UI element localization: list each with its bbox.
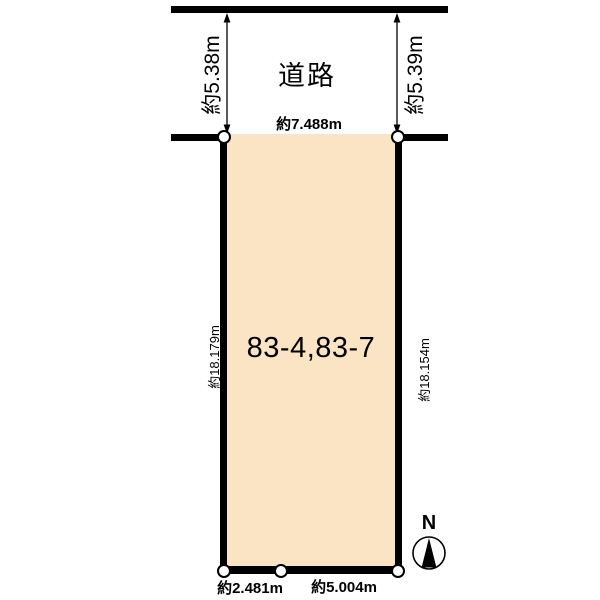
left-dimension-arrow (224, 13, 231, 134)
boundary-point-bottom-left (217, 564, 231, 578)
road-width-left-dimension: 約5.38m (196, 15, 218, 135)
parcel-bottom-right-edge-dimension: 約5.004m (294, 576, 394, 597)
road-label: 道路 (247, 54, 367, 93)
parcel-bottom-left-edge-dimension: 約2.481m (200, 577, 300, 598)
boundary-point-top-right (391, 130, 405, 144)
boundary-point-top-left (217, 130, 231, 144)
north-label: N (414, 512, 444, 535)
parcel-left-edge-dimension: 約18.179m (204, 297, 218, 417)
boundary-point-bottom-right (391, 564, 405, 578)
parcel-top-edge-dimension: 約7.488m (249, 113, 369, 134)
parcel-right-edge-dimension: 約18.154m (414, 310, 428, 430)
road-upper-edge-line (171, 6, 448, 13)
boundary-point-bottom-middle (274, 564, 288, 578)
north-compass-icon (413, 537, 445, 569)
land-plot-diagram: 道路 約5.38m 約5.39m 83-4,83-7 約7.488m 約18.1… (0, 0, 600, 600)
road-width-right-dimension: 約5.39m (399, 15, 421, 135)
parcel-lot-number: 83-4,83-7 (222, 332, 400, 365)
